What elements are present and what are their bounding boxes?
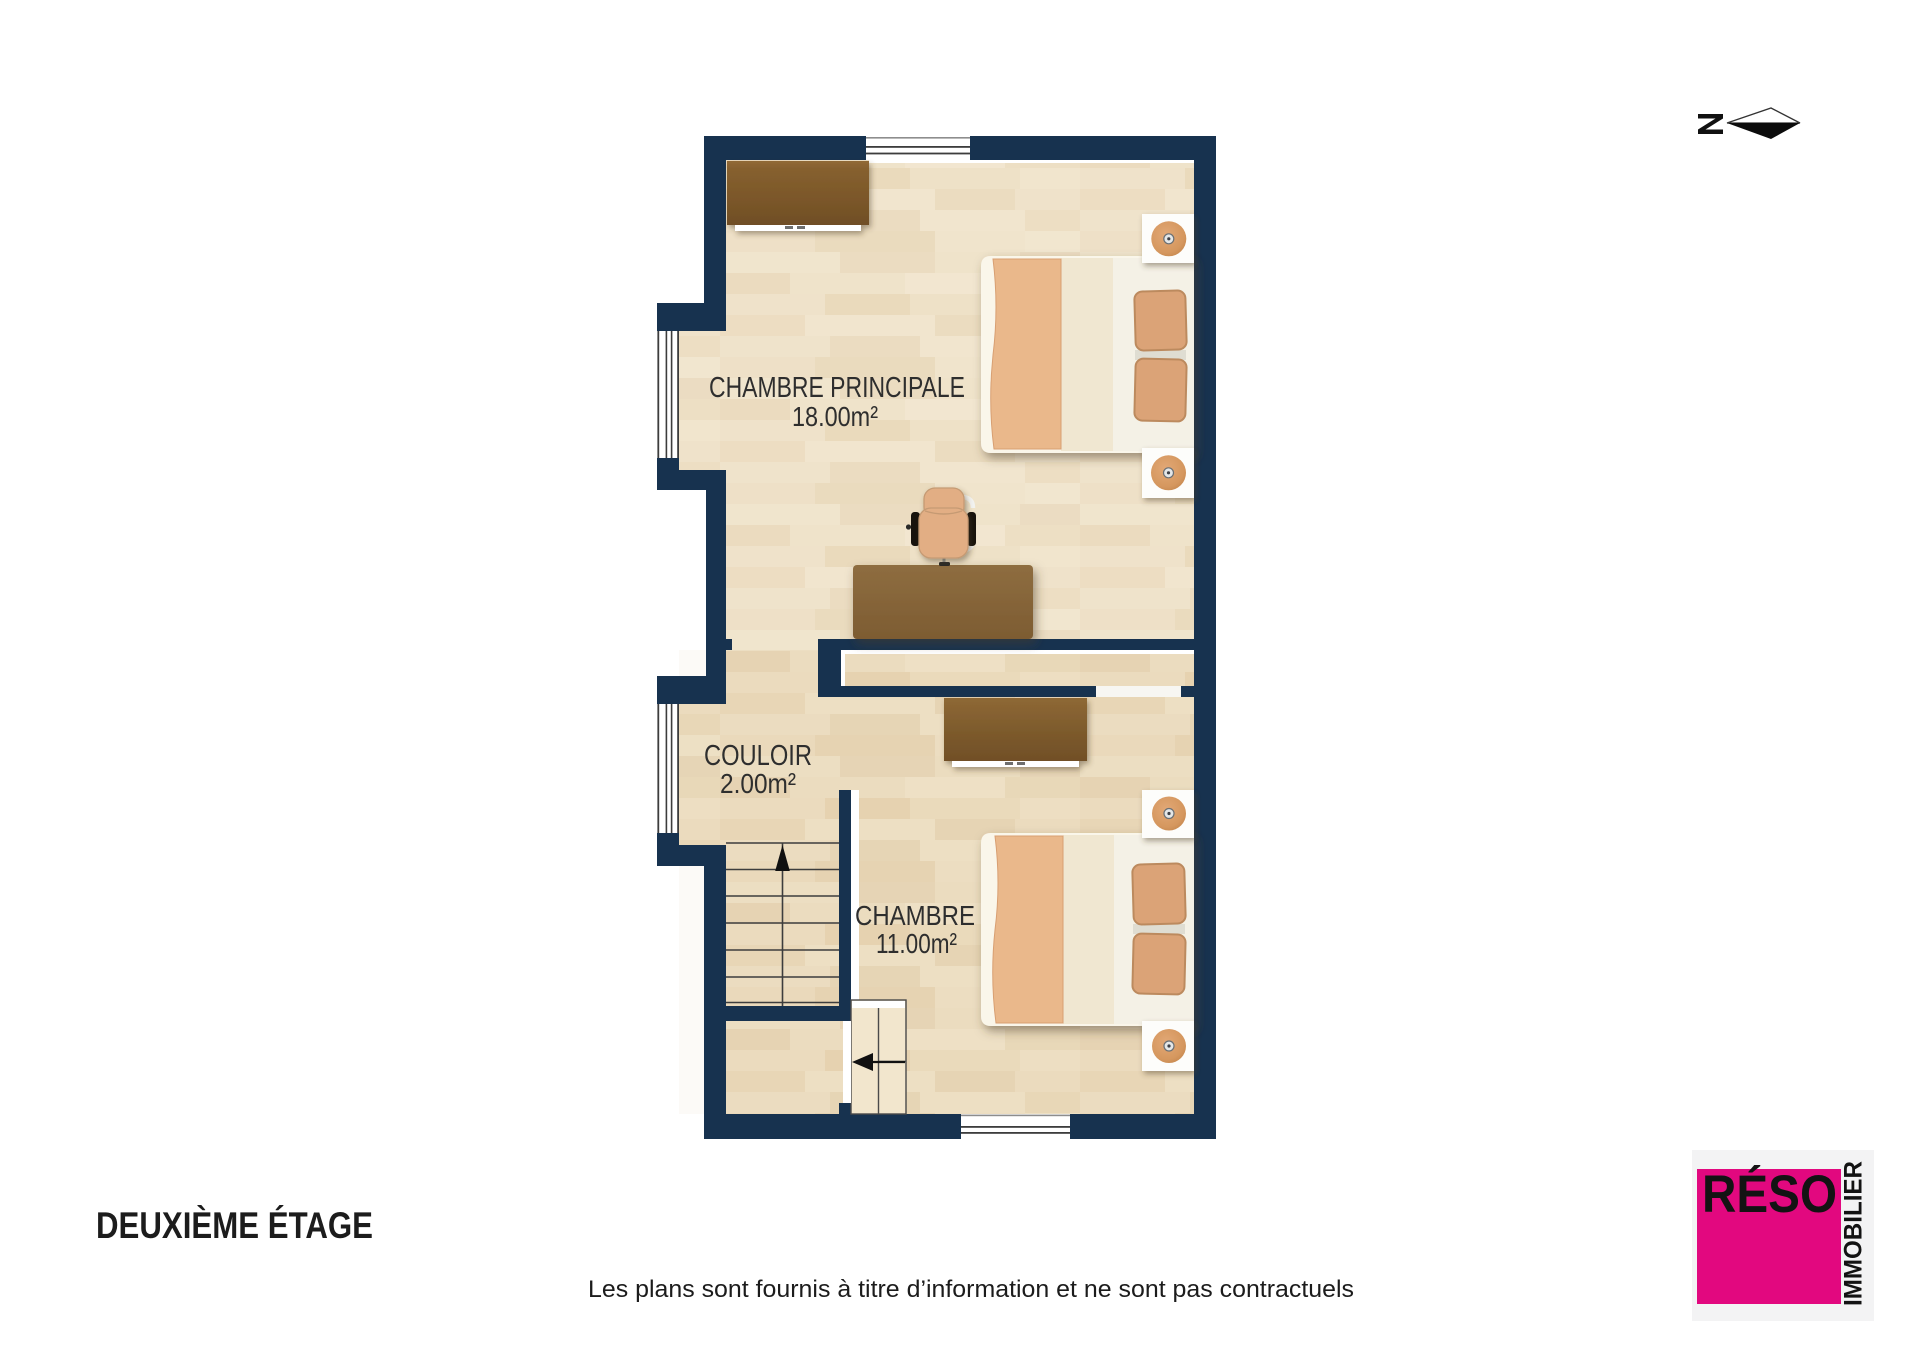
svg-text:DEUXIÈME ÉTAGE: DEUXIÈME ÉTAGE: [96, 1205, 373, 1246]
svg-text:11.00m²: 11.00m²: [876, 928, 957, 959]
svg-text:Les plans sont fournis à titre: Les plans sont fournis à titre d’informa…: [588, 1276, 1354, 1303]
svg-text:IMMOBILIER: IMMOBILIER: [1840, 1161, 1868, 1306]
svg-text:2.00m²: 2.00m²: [720, 768, 796, 799]
svg-text:CHAMBRE: CHAMBRE: [855, 900, 975, 931]
svg-text:CHAMBRE PRINCIPALE: CHAMBRE PRINCIPALE: [709, 372, 965, 404]
svg-text:RÉSO: RÉSO: [1702, 1164, 1837, 1224]
svg-text:18.00m²: 18.00m²: [792, 401, 878, 432]
